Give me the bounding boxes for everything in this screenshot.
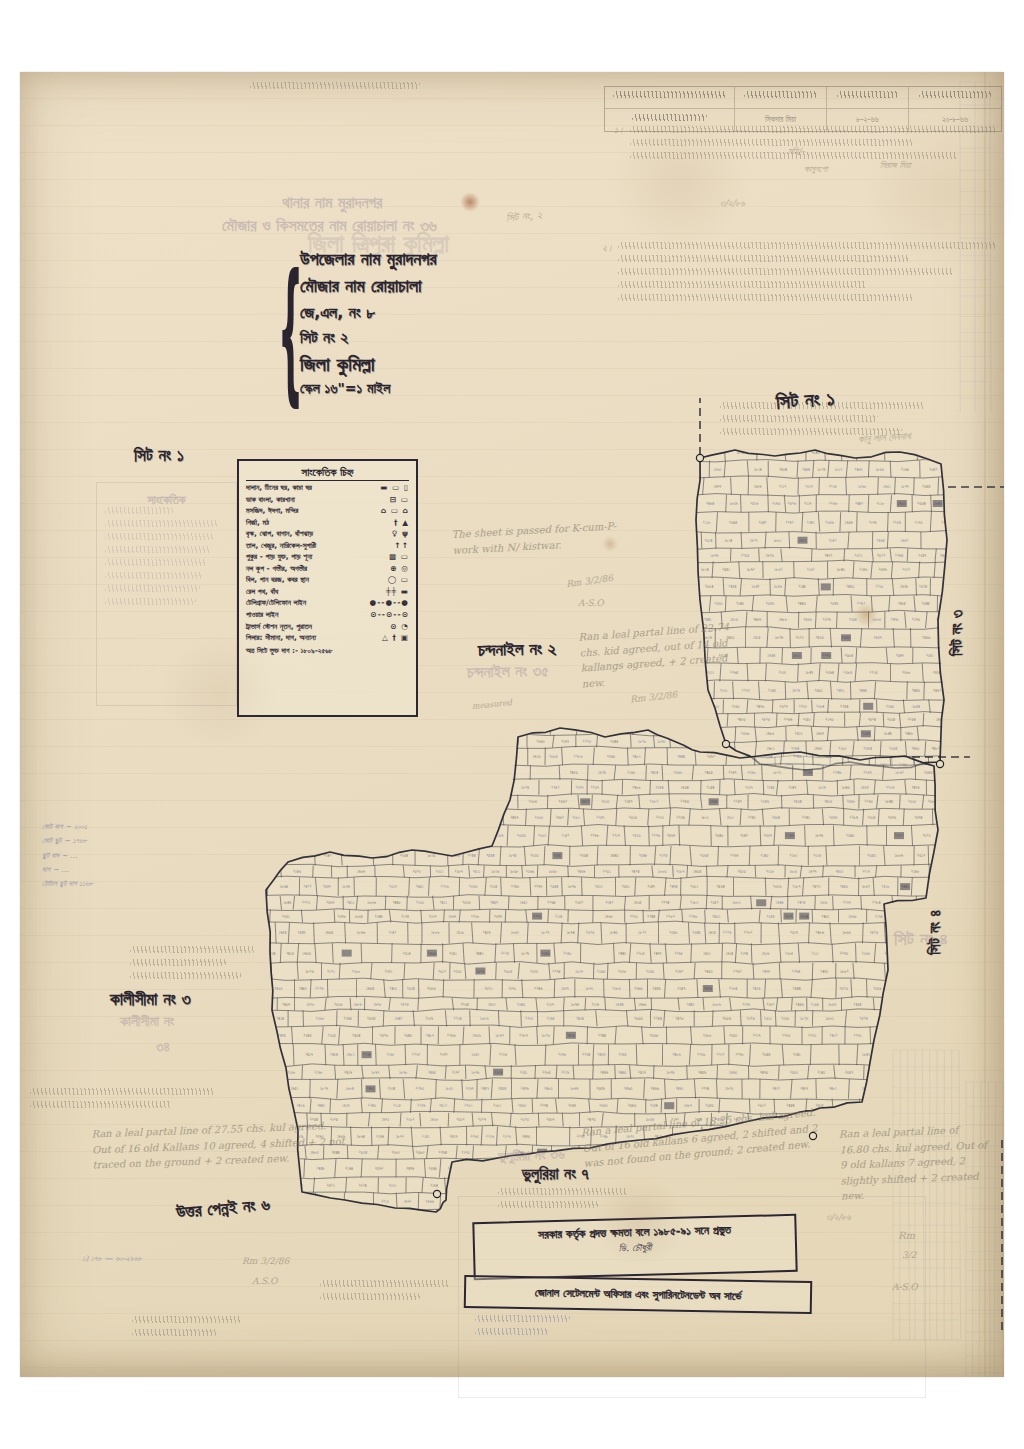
- bleedthrough-scribble: [105, 598, 196, 605]
- svg-text:১৮৬২: ১৮৬২: [774, 567, 783, 572]
- svg-text:২০২০: ২০২০: [922, 833, 930, 838]
- svg-text:২০২৯: ২০২৯: [823, 617, 831, 622]
- svg-text:২৫২৯: ২৫২৯: [435, 785, 444, 790]
- handwriting-scribble-block: [720, 402, 925, 441]
- svg-text:১৮৮৩: ১৮৮৩: [658, 869, 667, 874]
- svg-text:২০৪২: ২০৪২: [736, 1183, 745, 1188]
- svg-text:২২৯৫: ২২৯৫: [895, 553, 904, 558]
- svg-text:২২৫৮: ২২৫৮: [563, 951, 572, 956]
- svg-text:২৪৪০: ২৪৪০: [618, 951, 626, 956]
- svg-text:২৪১২: ২৪১২: [448, 1217, 457, 1222]
- svg-text:১৯০৮: ১৯০৮: [585, 726, 594, 731]
- svg-text:২৩৬৫: ২৩৬৫: [700, 853, 709, 858]
- svg-text:২৪৮৬: ২৪৮৬: [815, 930, 824, 935]
- svg-text:২১৪৭: ২১৪৭: [788, 785, 796, 790]
- svg-text:২৪৪৪: ২৪৪৪: [677, 754, 685, 759]
- svg-text:২৩১৮: ২৩১৮: [908, 799, 917, 804]
- svg-text:২৩৫৫: ২৩৫৫: [729, 520, 738, 525]
- svg-text:১৯৫৯: ১৯৫৯: [845, 520, 853, 525]
- svg-text:২১৬২: ২১৬২: [806, 567, 815, 572]
- svg-text:২০০৮: ২০০৮: [618, 969, 627, 974]
- svg-text:২৪৩৫: ২৪৩৫: [704, 770, 712, 775]
- svg-text:২১৪৬: ২১৪৬: [293, 869, 302, 874]
- svg-text:১৯৯৪: ১৯৯৪: [616, 1002, 624, 1007]
- svg-text:১৮৮৬: ১৮৮৬: [367, 900, 376, 905]
- svg-text:২৩৯৯: ২৩৯৯: [829, 815, 838, 820]
- svg-text:২৪৭৩: ২৪৭৩: [920, 900, 929, 905]
- svg-text:২৪৮৪: ২৪৮৪: [301, 785, 309, 790]
- svg-text:২৩০৫: ২৩০৫: [439, 770, 447, 775]
- svg-text:১৮৩৭: ১৮৩৭: [828, 1002, 836, 1007]
- svg-text:২৫৪৭: ২৫৪৭: [896, 653, 904, 658]
- legend-row-label: বৃক্ষ, ঝোপ, বাগান, বাঁশঝাড়: [246, 530, 313, 539]
- legend-row-label: তাল, খেজুর, নারিকেল-সুপারী: [246, 542, 316, 551]
- svg-text:২০৭১: ২০৭১: [508, 986, 516, 991]
- svg-text:২৩৩৬: ২৩৩৬: [453, 1183, 463, 1188]
- svg-text:২২৬২: ২২৬২: [733, 969, 743, 974]
- svg-text:২২০৬: ২২০৬: [401, 770, 410, 775]
- svg-text:১৮৯৯: ১৮৯৯: [342, 884, 350, 889]
- svg-text:২৪১৩: ২৪১৩: [286, 951, 295, 956]
- svg-text:২১২৩: ২১২৩: [461, 1150, 470, 1155]
- svg-text:১৮২৮: ১৮২৮: [638, 739, 647, 744]
- svg-text:১৯২৭: ১৯২৭: [809, 869, 817, 874]
- handwriting-scribble-block: [475, 1315, 570, 1341]
- svg-text:২৩০৭: ২৩০৭: [764, 833, 772, 838]
- svg-text:১৮১৯: ১৮১৯: [818, 785, 826, 790]
- svg-text:১৯০২: ১৯০২: [894, 1052, 903, 1057]
- svg-text:২১৩৬: ২১৩৬: [700, 1183, 709, 1188]
- svg-text:২৫৩১: ২৫৩১: [815, 688, 823, 693]
- svg-text:১৮৩০: ১৮৩০: [511, 930, 519, 935]
- svg-text:২৪৯৮: ২৪৯৮: [704, 731, 713, 736]
- svg-text:২১৫২: ২১৫২: [561, 833, 570, 838]
- svg-text:২০৩৩: ২০৩৩: [530, 853, 539, 858]
- svg-text:২৪৫৭: ২৪৫৭: [490, 900, 498, 905]
- svg-text:২০৯৪: ২০৯৪: [791, 746, 799, 751]
- svg-text:২৪০২: ২৪০২: [772, 1086, 781, 1091]
- svg-text:১৯১৯: ১৯১৯: [342, 1103, 350, 1108]
- svg-text:২১৪৭: ২১৪৭: [499, 785, 507, 790]
- svg-text:২২৯৫: ২২৯৫: [674, 951, 683, 956]
- legend-row-label: মসজিদ, ঈদগা, মন্দির: [246, 507, 298, 516]
- svg-text:১৮৫৪: ১৮৫৪: [912, 704, 920, 709]
- svg-text:২২১৬: ২২১৬: [931, 1070, 940, 1075]
- svg-text:২০৮১: ২০৮১: [690, 884, 698, 889]
- svg-text:২৩৩৩: ২৩৩৩: [634, 1016, 644, 1021]
- svg-text:১৮৪১: ১৮৪১: [852, 1117, 860, 1122]
- svg-text:২২৬৫: ২২৬৫: [547, 900, 556, 905]
- svg-text:১৮৪০: ১৮৪০: [411, 739, 419, 744]
- surveyor-pencil-note: Ran a leal partal line of 27.55 chs. kul…: [91, 1118, 347, 1173]
- svg-text:২৪৮৫: ২৪৮৫: [873, 1070, 882, 1075]
- svg-text:২০৭০: ২০৭০: [742, 1002, 750, 1007]
- legend-row-symbol-icon: ⊙ ◔: [390, 623, 409, 632]
- svg-text:২২৪৬: ২২৪৬: [534, 986, 543, 991]
- table-cell-scribble: [827, 87, 909, 109]
- svg-text:২২৩৭: ২২৩৭: [863, 770, 872, 775]
- svg-text:১৮১০: ১৮১০: [391, 785, 399, 790]
- pencil-fragment: কানুনগো: [804, 164, 827, 175]
- legend-row-symbol-icon: ●--●--●: [370, 599, 410, 608]
- svg-text:২১৬৬: ২১৬৬: [861, 951, 870, 956]
- scribble-line: [720, 402, 925, 409]
- svg-text:১৮২৬: ১৮২৬: [541, 1033, 550, 1038]
- svg-text:২২৪১: ২২৪১: [748, 815, 756, 820]
- svg-text:২১৪৩: ২১৪৩: [760, 853, 769, 858]
- svg-text:১৯৯৩: ১৯৯৩: [729, 1070, 738, 1075]
- svg-text:২৫০৬: ২৫০৬: [381, 1217, 390, 1222]
- svg-text:২২৪৩: ২২৪৩: [278, 833, 287, 838]
- svg-text:১৯৬৮: ১৯৬৮: [848, 914, 857, 919]
- svg-text:২৪৫৭: ২৪৫৭: [459, 739, 467, 744]
- svg-text:২২৮৯: ২২৮৯: [849, 815, 858, 820]
- svg-text:২১৯৮: ২১৯৮: [314, 1070, 323, 1075]
- svg-text:১৯৬৭: ১৯৬৭: [448, 914, 456, 919]
- svg-text:২৩০২: ২৩০২: [566, 1183, 575, 1188]
- svg-text:২৪৫৮: ২৪৫৮: [905, 731, 914, 736]
- svg-text:২০৫৭: ২০৫৭: [880, 1117, 888, 1122]
- svg-text:২২৩৭: ২২৩৭: [590, 785, 599, 790]
- margin-tally-list: মোট দাগ ~ ২০০১মোট ছুট ~ ১৭৬৮ছুট বাদ ~ …দ…: [42, 820, 93, 891]
- pencil-fragment: A-S.O: [892, 1282, 918, 1292]
- svg-text:২১৩৩: ২১৩৩: [597, 969, 606, 974]
- svg-text:২০৬৯: ২০৬৯: [927, 1033, 935, 1038]
- svg-text:২০০৭: ২০০৭: [745, 785, 753, 790]
- svg-text:১৯১৫: ১৯১৫: [753, 635, 761, 640]
- svg-text:২৫২০: ২৫২০: [812, 884, 820, 889]
- scribble-line: [498, 1201, 598, 1208]
- svg-text:২৫০৭: ২৫০৭: [449, 1134, 457, 1139]
- svg-text:২১০৭: ২১০৭: [429, 914, 437, 919]
- svg-text:২৩৩৬: ২৩৩৬: [825, 520, 835, 525]
- svg-text:২১৮১: ২১৮১: [790, 853, 798, 858]
- svg-text:১৮৭৬: ১৮৭৬: [270, 1183, 279, 1188]
- svg-text:১৮২৭: ১৮২৭: [323, 799, 331, 804]
- svg-text:১৮১৬: ১৮১৬: [491, 869, 500, 874]
- svg-text:১৮৯৭: ১৮৯৭: [495, 1033, 503, 1038]
- svg-text:২৫০৬: ২৫০৬: [313, 815, 322, 820]
- svg-text:২২৯৯: ২২৯৯: [940, 853, 949, 858]
- svg-text:১৯৩৪: ১৯৩৪: [681, 785, 689, 790]
- svg-text:২৩৯৬: ২৩৯৬: [890, 969, 900, 974]
- svg-text:২৩২৩: ২৩২৩: [951, 833, 961, 838]
- legend-rows: দালান, টিনের ঘর, কাচা ঘর▬ ▭ ▯ডাক বাংলা, …: [246, 484, 409, 643]
- svg-text:২২৮৫: ২২৮৫: [636, 951, 645, 956]
- svg-text:১৮২৬: ১৮২৬: [305, 969, 314, 974]
- svg-text:২২০৬: ২২০৬: [440, 884, 449, 889]
- svg-text:১৯০১: ১৯০১: [402, 833, 410, 838]
- svg-text:১৯৩৫: ১৯৩৫: [366, 986, 374, 991]
- scribble-line: [130, 946, 255, 953]
- svg-text:২০৮২: ২০৮২: [406, 1117, 415, 1122]
- svg-text:২৫৬৩: ২৫৬৩: [947, 567, 956, 572]
- legend-row: টেলিগ্রাফ/টেলিফোন লাইন●--●--●: [246, 599, 409, 608]
- svg-text:২৪৫৪: ২৪৫৪: [853, 1002, 861, 1007]
- svg-text:২১০৯: ২১০৯: [425, 1016, 433, 1021]
- svg-text:২১৭৭: ২১৭৭: [946, 799, 954, 804]
- legend-row-symbol-icon: ◯ ▭: [388, 576, 409, 585]
- svg-text:২৪৫০: ২৪৫০: [299, 986, 307, 991]
- svg-text:২৩৪৮: ২৩৪৮: [715, 833, 724, 838]
- svg-text:১৯২৯: ১৯২৯: [792, 688, 800, 693]
- svg-text:২৫৫৪: ২৫৫৪: [498, 1086, 506, 1091]
- svg-text:১৮৩৮: ১৮৩৮: [510, 869, 519, 874]
- svg-text:২০৫২: ২০৫২: [828, 538, 837, 543]
- svg-text:২৩৬৯: ২৩৬৯: [271, 754, 280, 759]
- scribble-line: [720, 428, 902, 435]
- svg-text:২৫৩৪: ২৫৩৪: [793, 799, 801, 804]
- svg-text:২৩৩৪: ২৩৩৪: [917, 501, 926, 506]
- svg-text:১৯৬৮: ১৯৬৮: [638, 1002, 647, 1007]
- legend-row-symbol-icon: △ † ▣: [382, 634, 409, 643]
- svg-text:১৯৩৭: ১৯৩৭: [861, 785, 869, 790]
- svg-text:২০০৮: ২০০৮: [781, 1016, 790, 1021]
- svg-text:২৪৪০: ২৪৪০: [687, 1002, 695, 1007]
- svg-text:২৩৫৫: ২৩৫৫: [922, 484, 931, 489]
- svg-text:২১৭৫: ২১৭৫: [875, 914, 883, 919]
- svg-text:২২১০: ২২১০: [387, 815, 395, 820]
- bleedthrough-scribble: [105, 520, 218, 527]
- legend-row-label: দালান, টিনের ঘর, কাচা ঘর: [246, 484, 312, 493]
- svg-text:২২৮২: ২২৮২: [666, 914, 676, 919]
- svg-text:২২২৫: ২২২৫: [500, 951, 509, 956]
- svg-text:১৮৭৬: ১৮৭৬: [331, 833, 340, 838]
- svg-text:২৩২১: ২৩২১: [484, 986, 493, 991]
- svg-text:২০৫১: ২০৫১: [449, 951, 457, 956]
- svg-text:২৫০৩: ২৫০৩: [815, 635, 824, 640]
- svg-text:২১৯৮: ২১৯৮: [911, 869, 920, 874]
- svg-text:২৫০৮: ২৫০৮: [507, 1166, 516, 1171]
- svg-text:১৮৪৩: ১৮৪৩: [837, 567, 846, 572]
- svg-text:২৩১২: ২৩১২: [758, 1103, 767, 1108]
- svg-text:১৮৫০: ১৮৫০: [273, 853, 281, 858]
- svg-text:২৫০৭: ২৫০৭: [546, 1117, 554, 1122]
- svg-text:২৩৩৬: ২৩৩৬: [884, 951, 894, 956]
- svg-text:২১১৫: ২১১৫: [398, 726, 406, 731]
- svg-text:২১৬০: ২১৬০: [386, 1052, 394, 1057]
- svg-text:১৯২৪: ১৯২৪: [268, 1070, 276, 1075]
- svg-text:২৩৩৩: ২৩৩৩: [517, 833, 527, 838]
- map-sheet-label: কালীসীমা নং: [120, 1013, 174, 1030]
- svg-text:১৯৬১: ১৯৬১: [936, 717, 944, 722]
- svg-text:২০৭৭: ২০৭৭: [575, 785, 583, 790]
- svg-text:২৩৪৯: ২৩৪৯: [692, 930, 701, 935]
- pencil-fragment: ১) ১৭৮ — ৬০-২৯৬৮: [82, 1254, 142, 1264]
- bleedthrough-scribble: [105, 507, 173, 514]
- svg-text:২১২৬: ২১২৬: [329, 770, 338, 775]
- svg-text:২৪০২: ২৪০২: [940, 553, 949, 558]
- svg-text:২২৯৪: ২২৯৪: [439, 1150, 447, 1155]
- svg-text:২৫৬১: ২৫৬১: [911, 746, 919, 751]
- svg-text:১৮১৪: ১৮১৪: [462, 770, 470, 775]
- svg-text:২১৭৩: ২১৭৩: [914, 520, 923, 525]
- svg-text:২৪১২: ২৪১২: [448, 1166, 457, 1171]
- svg-text:১৮৮৭: ১৮৮৭: [895, 914, 903, 919]
- svg-text:২২১৩: ২২১৩: [869, 670, 878, 675]
- svg-text:২২৮২: ২২৮২: [744, 930, 754, 935]
- svg-text:২৩০৬: ২৩০৬: [427, 986, 436, 991]
- svg-text:১৮৫০: ১৮৫০: [631, 1183, 639, 1188]
- svg-text:১৯৪২: ১৯৪২: [463, 726, 472, 731]
- svg-text:২৪৯৭: ২৪৯৭: [510, 815, 518, 820]
- svg-text:২২৪৪: ২২৪৪: [467, 853, 475, 858]
- svg-text:২৪৬৩: ২৪৬৩: [624, 1086, 633, 1091]
- svg-text:২২১৭: ২২১৭: [752, 1033, 760, 1038]
- svg-text:২৪৫৪: ২৪৫৪: [802, 467, 810, 472]
- svg-text:২৩১৭: ২৩১৭: [389, 884, 397, 889]
- svg-text:২২২৯: ২২২৯: [723, 930, 732, 935]
- svg-text:১৮৮১: ১৮৮১: [826, 1016, 834, 1021]
- svg-text:২২৭৫: ২২৭৫: [701, 1086, 709, 1091]
- pencil-fragment: ২।: [602, 242, 614, 254]
- svg-text:২১৩৬: ২১৩৬: [646, 969, 655, 974]
- svg-text:২৩৮৫: ২৩৮৫: [845, 653, 854, 658]
- svg-text:২৪৫৪: ২৪৫৪: [728, 584, 736, 589]
- svg-text:২২০০: ২২০০: [808, 1033, 816, 1038]
- svg-text:২২০০: ২২০০: [656, 815, 664, 820]
- svg-text:২৩৮৫: ২৩৮৫: [549, 754, 558, 759]
- svg-text:২৫৬৪: ২৫৬৪: [958, 553, 966, 558]
- svg-text:২০০১: ২০০১: [720, 688, 728, 693]
- svg-text:২৩০৬: ২৩০৬: [773, 884, 782, 889]
- svg-text:১৯০৮: ১৯০৮: [265, 770, 274, 775]
- svg-text:১৮৭৬: ১৮৭৬: [471, 1070, 480, 1075]
- svg-text:২৫৪৮: ২৫৪৮: [507, 754, 516, 759]
- svg-text:১৯৫৪: ১৯৫৪: [316, 1217, 324, 1222]
- svg-text:২০৫৫: ২০৫৫: [264, 785, 272, 790]
- table-cell-scribble: [909, 87, 1001, 109]
- svg-text:২৫৪৭: ২৫৪৭: [380, 739, 388, 744]
- svg-text:২২০৫: ২২০৫: [828, 484, 836, 489]
- svg-text:২৫৬৫: ২৫৬৫: [876, 538, 885, 543]
- svg-text:২৩৮০: ২৩৮০: [416, 1150, 425, 1155]
- svg-text:২১৯২: ২১৯২: [675, 969, 684, 974]
- svg-text:২১০৪: ২১০৪: [948, 484, 956, 489]
- svg-text:২১৬২: ২১৬২: [865, 1103, 874, 1108]
- svg-text:২১৭২: ২১৭২: [452, 1070, 461, 1075]
- svg-text:১৯১৮: ১৯১৮: [820, 900, 829, 905]
- legend-row-label: পাওয়ার লাইন: [246, 611, 278, 620]
- svg-text:২৩২২: ২৩২২: [877, 553, 887, 558]
- svg-text:২৪০৯: ২৪০৯: [483, 930, 491, 935]
- scribble-line: [618, 281, 867, 288]
- svg-text:২৪০৩: ২৪০৩: [569, 770, 578, 775]
- svg-text:২৩০২: ২৩০২: [456, 1117, 465, 1122]
- svg-text:২০৯৭: ২০৯৭: [465, 1086, 473, 1091]
- svg-text:১৮৭২: ১৮৭২: [963, 670, 972, 675]
- svg-text:১৮৮৮: ১৮৮৮: [437, 739, 446, 744]
- svg-text:২৪৪৯: ২৪৪৯: [316, 1166, 324, 1171]
- svg-text:১৮৮৬: ১৮৮৬: [712, 1002, 721, 1007]
- svg-text:২৪১১: ২৪১১: [439, 900, 447, 905]
- title-line: স্কেল ১৬"=১ মাইল: [300, 380, 390, 397]
- scribble-line: [320, 1280, 450, 1287]
- svg-text:২২৯৩: ২২৯৩: [680, 799, 689, 804]
- svg-text:২১৩৫: ২১৩৫: [327, 1033, 335, 1038]
- svg-text:২১৯৩: ২১৯৩: [353, 754, 362, 759]
- svg-text:২১৪৩: ২১৪৩: [930, 450, 939, 455]
- svg-text:১৮৪০: ১৮৪০: [862, 1052, 870, 1057]
- pencil-fragment: Rm 3/2/86: [242, 1256, 289, 1266]
- svg-text:১৯০৫: ১৯০৫: [515, 726, 523, 731]
- svg-text:২৩৪৫: ২৩৪৫: [921, 601, 929, 606]
- svg-text:২২৯২: ২২৯২: [857, 601, 866, 606]
- margin-tally-line: মোট দাগ ~ ২০০১: [42, 820, 93, 834]
- map-sheet-label: ভুলুরিয়া নং ৭: [522, 1164, 589, 1183]
- svg-text:২৪১৬: ২৪১৬: [296, 1103, 305, 1108]
- svg-text:২২৩৫: ২২৩৫: [741, 553, 750, 558]
- svg-text:২৫৫৯: ২৫৫৯: [652, 986, 660, 991]
- legend-row: ট্রাভার্স স্টেশন নূতন, পুরাতন⊙ ◔: [246, 623, 409, 632]
- svg-text:২০৮৬: ২০৮৬: [954, 778, 963, 783]
- svg-text:২১৭৩: ২১৭৩: [912, 617, 921, 622]
- scribble-line: [630, 139, 913, 146]
- svg-text:১৯৫৪: ১৯৫৪: [278, 930, 286, 935]
- svg-text:২২৪৬: ২২৪৬: [793, 754, 802, 759]
- scribble-line: [720, 415, 878, 422]
- svg-text:১৯৮১: ১৯৮১: [766, 746, 774, 751]
- pencil-fragment: 3/2: [902, 1250, 916, 1260]
- svg-text:২০৮৬: ২০৮৬: [919, 1086, 928, 1091]
- svg-text:২৪৭৭: ২৪৭৭: [762, 969, 770, 974]
- svg-text:২৫৪৪: ২৫৪৪: [793, 986, 801, 991]
- svg-text:১৮৯৮: ১৮৯৮: [858, 484, 867, 489]
- svg-text:২৩৩৫: ২৩৩৫: [367, 1016, 376, 1021]
- svg-text:২২০৮: ২২০৮: [471, 914, 480, 919]
- svg-text:২৪৭৩: ২৪৭৩: [719, 1183, 728, 1188]
- svg-text:১৯১৫: ১৯১৫: [708, 930, 716, 935]
- svg-text:২২০২: ২২০২: [530, 1183, 539, 1188]
- map-sheet-label: কালীসীমা নং ৩: [110, 989, 191, 1009]
- map-sheet-label: সিট নং ১: [134, 445, 184, 465]
- legend-row: পুকুর - পাড় যুক্ত, পাড় শূন্য▩ ▭: [246, 553, 409, 562]
- svg-text:১৮২৪: ১৮২৪: [485, 1166, 493, 1171]
- svg-text:১৮৬৩: ১৮৬৩: [769, 1166, 778, 1171]
- scribble-line: [630, 126, 998, 133]
- svg-text:২২১২: ২২১২: [716, 1052, 725, 1057]
- svg-text:১৮২৫: ১৮২৫: [817, 467, 825, 472]
- svg-text:২২৪৬: ২২৪৬: [833, 770, 842, 775]
- svg-text:২১৫৩: ২১৫৩: [859, 567, 868, 572]
- svg-text:২১০০: ২১০০: [940, 900, 948, 905]
- surveyor-pencil-note: Ran a leal partal line of 22.74 chs. kid…: [578, 618, 742, 691]
- svg-text:২৪০৭: ২৪০৭: [800, 1086, 808, 1091]
- svg-text:২৩৩২: ২৩৩২: [558, 799, 568, 804]
- svg-text:১৯৫১: ১৯৫১: [291, 1086, 299, 1091]
- svg-text:২১৯৪: ২১৯৪: [430, 1183, 438, 1188]
- svg-text:১৮৪২: ১৮৪২: [752, 584, 761, 589]
- scribble-line: [498, 1188, 628, 1195]
- legend-row-symbol-icon: ♀ ψ: [392, 530, 409, 539]
- svg-text:২৪৮৩: ২৪৮৩: [544, 1086, 553, 1091]
- svg-text:২৩০৭: ২৩০৭: [307, 739, 315, 744]
- svg-text:২১৫২: ২১৫২: [710, 900, 719, 905]
- authority-stamp-box: সরকার কর্তৃক প্রদত্ত ক্ষমতা বলে ১৯৮৫-৯১ …: [472, 1214, 797, 1280]
- svg-text:২০৮৪: ২০৮৪: [478, 754, 486, 759]
- svg-text:২৫৬৬: ২৫৬৬: [425, 1199, 434, 1204]
- svg-text:২১৮১: ২১৮১: [493, 1103, 501, 1108]
- svg-text:২১৯৫: ২১৯৫: [547, 1016, 555, 1021]
- svg-text:২৪৪২: ২৪৪২: [855, 501, 864, 506]
- svg-text:২৪০৪: ২৪০৪: [650, 770, 658, 775]
- title-line: মৌজার নাম রোয়াচালা: [300, 275, 422, 297]
- svg-text:২৩৭৭: ২৩৭৭: [494, 914, 502, 919]
- svg-text:২৫৪০: ২৫৪০: [425, 799, 433, 804]
- svg-text:২০৫১: ২০৫১: [803, 717, 811, 722]
- svg-text:২১০৪: ২১০৪: [555, 914, 563, 919]
- svg-text:২২৫৭: ২২৫৭: [596, 815, 604, 820]
